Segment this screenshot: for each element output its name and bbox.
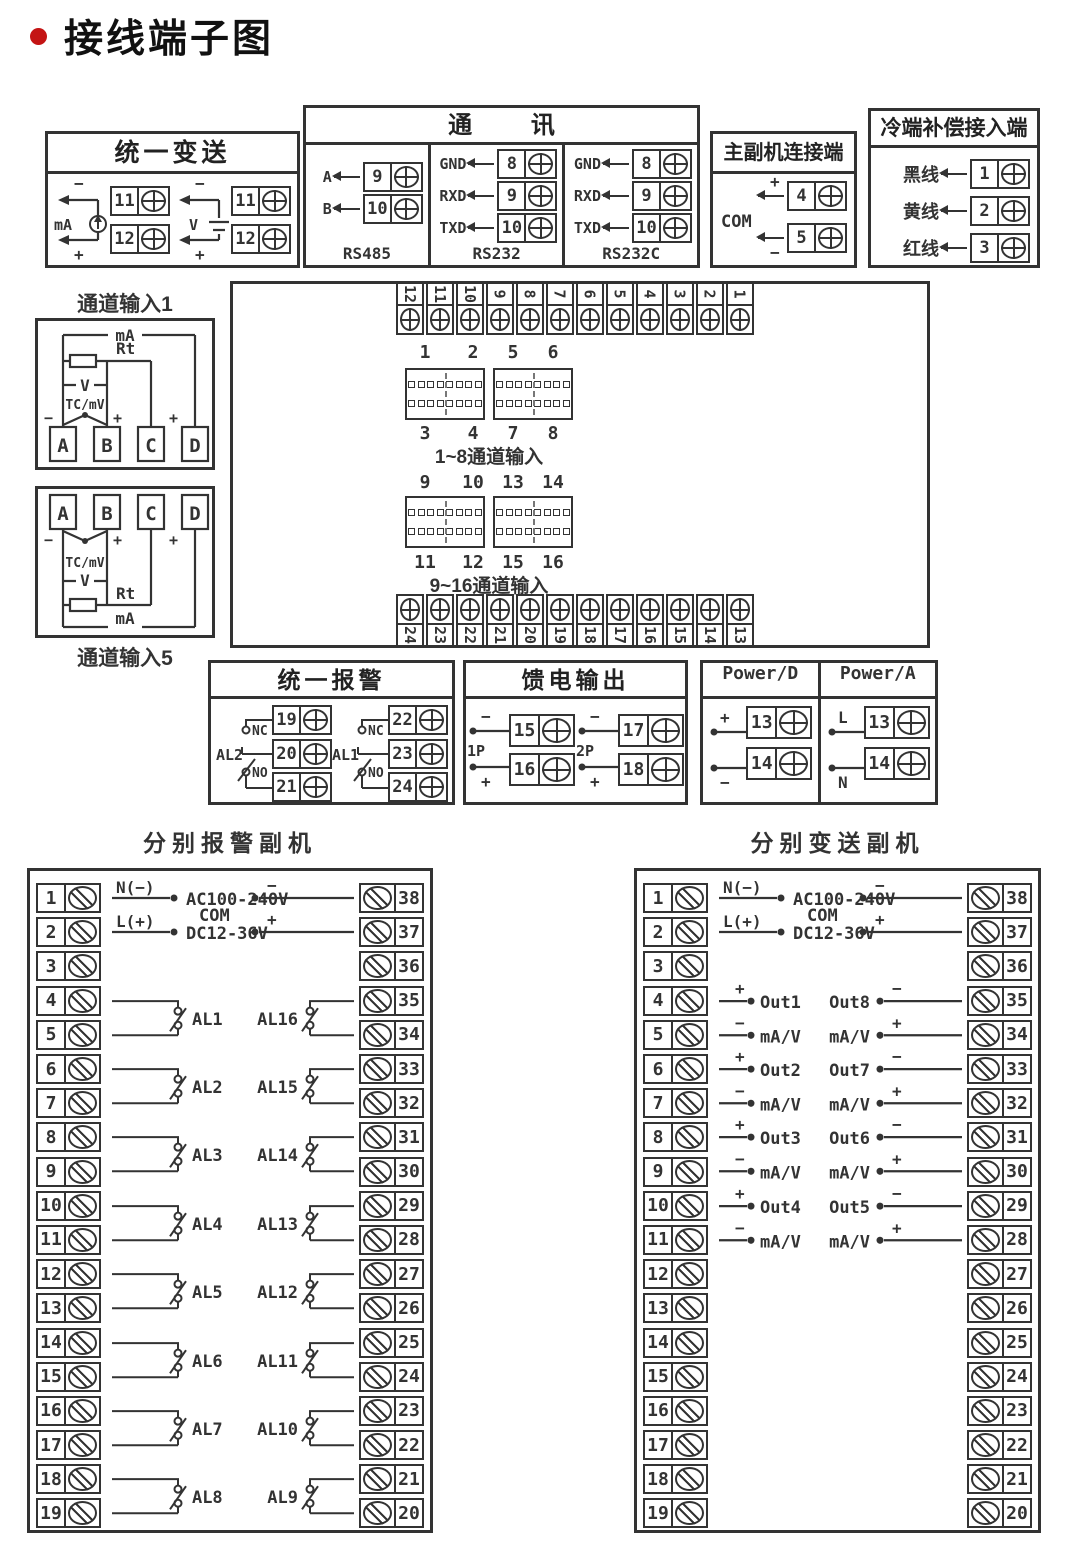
l-label: L(+) — [723, 912, 762, 931]
screw-icon — [668, 596, 692, 623]
screw-icon — [361, 1330, 394, 1356]
relay-switch-glyph: AL11 — [234, 1326, 354, 1394]
screw-icon — [969, 1227, 1002, 1253]
screw-icon — [673, 1466, 706, 1492]
arrow-left-icon — [758, 237, 784, 239]
ma-transmit-group: − mA + 11 12 — [54, 174, 170, 266]
terminal: 29 — [359, 1191, 424, 1221]
screw-icon — [66, 1398, 99, 1424]
plus-sign: + — [770, 172, 780, 191]
screw-icon — [698, 596, 722, 623]
screw-icon — [361, 1124, 394, 1150]
terminal-d: D — [189, 503, 200, 525]
screw-icon — [673, 1364, 706, 1390]
terminal: 26 — [359, 1293, 424, 1323]
comm-terminal: 8 — [497, 149, 557, 179]
screw-icon — [673, 1261, 706, 1287]
al1-terminals: 222324 — [388, 702, 448, 802]
right-output-stack: Out8 − mA/V + Out7 − mA/V + — [812, 984, 962, 1258]
alarm-terminal: 21 — [272, 772, 332, 802]
terminal: 17 — [36, 1430, 101, 1460]
screw-icon — [728, 596, 752, 623]
plus-sign: + — [875, 910, 885, 929]
strip-terminal: 14 — [696, 594, 724, 647]
screw-icon — [66, 1432, 99, 1458]
arrow-left-icon — [758, 195, 784, 197]
alarm-terminal: 19 — [272, 705, 332, 735]
v-label: V — [189, 216, 198, 234]
terminal: 10 — [36, 1191, 101, 1221]
screw-icon — [361, 1364, 394, 1390]
screw-icon — [548, 596, 572, 623]
screw-icon — [698, 306, 722, 333]
relay-switch-glyph: AL1 — [112, 984, 252, 1052]
minus-sign: − — [892, 1052, 902, 1066]
terminal-c: C — [145, 435, 156, 457]
connector-labels: 3478 — [405, 423, 573, 444]
terminal: 31 — [359, 1122, 424, 1152]
terminal: 23 — [967, 1396, 1032, 1426]
terminal: 13 — [643, 1293, 708, 1323]
relay-contact-glyph: NC AL1 NO — [332, 702, 388, 806]
screw-icon — [361, 1193, 394, 1219]
screw-icon — [816, 183, 845, 209]
unit-label: mA/V — [829, 1232, 870, 1252]
screw-icon — [518, 306, 542, 333]
screw-icon — [66, 1295, 99, 1321]
terminal: 25 — [967, 1328, 1032, 1358]
pin-number: 7 — [493, 423, 533, 444]
plus-sign: + — [892, 1218, 902, 1237]
screw-icon — [417, 741, 446, 767]
alarm-slave-title: 分别报警副机 — [27, 824, 433, 858]
feed-wire-glyph: − 2P + — [576, 705, 618, 795]
screw-icon — [673, 1432, 706, 1458]
connector-labels: 9101314 — [405, 472, 573, 493]
minus-sign: − — [74, 174, 84, 193]
screw-icon — [361, 1056, 394, 1082]
screw-icon — [361, 1261, 394, 1287]
channel-input-5-diagram: A B C D − + + TC/mV V Rt mA — [38, 489, 212, 635]
unified-transmit-title: 统一变送 — [48, 134, 297, 174]
pin-number: 2 — [453, 342, 493, 363]
screw-icon — [518, 596, 542, 623]
tc-mv-label: TC/mV — [65, 398, 104, 413]
v-terminals: 11 12 — [231, 186, 291, 254]
screw-icon — [608, 306, 632, 333]
arrow-left-icon — [603, 227, 629, 229]
terminal: 24 — [967, 1362, 1032, 1392]
cold-junction-panel: 冷端补偿接入端 黑线 1 黄线 2 红线 3 — [868, 108, 1040, 268]
screw-icon — [361, 988, 394, 1014]
terminal: 19 — [36, 1498, 101, 1528]
relay-switch-glyph: AL4 — [112, 1189, 252, 1257]
screw-icon — [139, 226, 168, 252]
terminal: 2 — [643, 917, 708, 947]
screw-icon — [417, 707, 446, 733]
strip-terminal: 15 — [666, 594, 694, 647]
screw-icon — [66, 1090, 99, 1116]
strip-terminal: 12 — [396, 282, 424, 335]
alarm-terminal: 24 — [388, 772, 448, 802]
terminal: 22 — [359, 1430, 424, 1460]
minus-sign: − — [770, 243, 780, 262]
plus-sign: + — [267, 910, 277, 929]
screw-icon — [661, 151, 690, 177]
terminal: 30 — [359, 1157, 424, 1187]
comm-row: B 10 — [306, 193, 428, 224]
l-label: L(+) — [116, 912, 155, 931]
screw-icon — [428, 596, 452, 623]
terminal: 37 — [359, 917, 424, 947]
strip-terminal: 17 — [606, 594, 634, 647]
screw-icon — [969, 1090, 1002, 1116]
screw-icon — [649, 755, 682, 784]
arrow-left-icon — [468, 163, 494, 165]
screw-icon — [895, 708, 928, 737]
1p-label: 1P — [467, 742, 485, 760]
transmit-slave-title: 分别变送副机 — [634, 824, 1041, 858]
strip-terminal: 24 — [396, 594, 424, 647]
relay-switch-glyph: AL5 — [112, 1257, 252, 1325]
terminal-row-4: + 4 — [756, 181, 847, 211]
arrow-left-icon — [603, 195, 629, 197]
comm-terminal: 10 — [632, 213, 692, 243]
screw-icon — [969, 1364, 1002, 1390]
unit-label: mA/V — [829, 1164, 870, 1184]
screw-icon — [66, 988, 99, 1014]
unified-alarm-title: 统一报警 — [211, 663, 452, 699]
relay-switch-glyph: AL7 — [112, 1394, 252, 1462]
communication-title: 通 讯 — [306, 108, 697, 145]
terminal: 12 — [643, 1259, 708, 1289]
terminal-d: D — [189, 435, 200, 457]
screw-icon — [66, 1056, 99, 1082]
feed-terminal: 17 — [618, 714, 684, 747]
terminal-11: 11 — [110, 186, 170, 216]
screw-icon — [673, 1124, 706, 1150]
nc-label: NC — [252, 724, 268, 739]
screw-icon — [673, 1193, 706, 1219]
com-label: COM — [721, 212, 752, 232]
alarm-slave-box: 12345678910111213141516171819 3837363534… — [27, 868, 433, 1533]
arrow-left-icon — [603, 163, 629, 165]
plus-sign: + — [720, 708, 730, 727]
terminal-b: B — [101, 435, 112, 457]
right-terminal-column: 38373635343332313029282726252423222120 — [967, 881, 1032, 1531]
relay-label: AL8 — [192, 1489, 223, 1509]
unit-label: mA/V — [760, 1095, 801, 1115]
plus-sign: + — [113, 409, 122, 427]
tc-mv-label: TC/mV — [65, 556, 104, 571]
terminal: 35 — [359, 986, 424, 1016]
terminal: 5 — [643, 1020, 708, 1050]
minus-sign: − — [735, 1081, 745, 1100]
screw-icon — [488, 596, 512, 623]
connector-labels: 11121516 — [405, 552, 573, 573]
screw-icon — [458, 596, 482, 623]
terminal-12: 12 — [231, 224, 291, 254]
channels-1-8-caption: 1~8通道输入 — [345, 442, 633, 469]
screw-icon — [66, 1193, 99, 1219]
power-d-terminals: 1314 — [746, 706, 812, 796]
screw-icon — [969, 919, 1002, 945]
output-label: Out8 — [829, 993, 870, 1013]
strip-terminal: 8 — [516, 282, 544, 335]
rs232-column: GND 8 RXD 9 TXD — [428, 145, 563, 265]
unit-label: mA/V — [829, 1095, 870, 1115]
comm-row: GND 8 — [565, 148, 697, 179]
minus-sign: − — [892, 984, 902, 998]
unit-label: mA/V — [760, 1164, 801, 1184]
strip-terminal: 23 — [426, 594, 454, 647]
screw-icon — [969, 1193, 1002, 1219]
v-label: V — [80, 376, 90, 395]
terminal-5: 5 — [787, 223, 847, 253]
pin-number: 16 — [533, 552, 573, 573]
terminal: 10 — [643, 1191, 708, 1221]
channel-input-1-box: mA Rt V TC/mV − + + A B C D — [35, 318, 215, 470]
left-relay-stack: AL1 AL2 AL3 — [112, 984, 252, 1531]
minus-sign: − — [735, 1150, 745, 1169]
bottom-terminal-strip: 24 23 22 21 20 19 18 17 16 15 14 13 — [396, 594, 754, 647]
strip-terminal: 9 — [486, 282, 514, 335]
terminal: 15 — [36, 1362, 101, 1392]
terminal: 1 — [643, 883, 708, 913]
relay-switch-glyph: AL2 — [112, 1052, 252, 1120]
power-a-column: Power/A L N 1314 — [818, 663, 936, 802]
relay-switch-glyph: AL13 — [234, 1189, 354, 1257]
minus-sign: − — [195, 174, 205, 193]
screw-icon — [428, 306, 452, 333]
strip-terminal: 6 — [576, 282, 604, 335]
terminal: 36 — [359, 951, 424, 981]
master-slave-body: COM + 4 − 5 — [713, 174, 854, 265]
screw-icon — [661, 183, 690, 209]
connector-block — [405, 368, 485, 420]
screw-icon — [673, 1500, 706, 1526]
master-slave-panel: 主副机连接端 COM + 4 − 5 — [710, 131, 857, 268]
terminal-a: A — [57, 435, 69, 457]
relay-label: AL14 — [257, 1147, 298, 1167]
screw-icon — [361, 1295, 394, 1321]
output-label: Out4 — [760, 1198, 801, 1218]
wiring-terminal-diagram-page: 接线端子图 统一变送 − mA + 11 12 — [0, 0, 1080, 1553]
minus-sign: − — [44, 531, 53, 549]
screw-icon — [673, 1056, 706, 1082]
feed-output-title: 馈电输出 — [466, 663, 685, 699]
comm-terminal: 8 — [632, 149, 692, 179]
screw-icon — [398, 596, 422, 623]
terminal: 4 — [643, 986, 708, 1016]
terminal: 35 — [967, 986, 1032, 1016]
terminal: 9 — [643, 1157, 708, 1187]
arrow-left-icon — [468, 195, 494, 197]
terminal: 31 — [967, 1122, 1032, 1152]
bullet-icon — [30, 28, 47, 45]
power-a-title: Power/A — [821, 663, 936, 699]
power-d-column: Power/D + − 1314 — [703, 663, 818, 802]
rs232-label: RS232 — [431, 244, 563, 263]
terminal: 14 — [36, 1328, 101, 1358]
unit-label: mA/V — [829, 1027, 870, 1047]
screw-icon — [673, 1227, 706, 1253]
terminal: 20 — [967, 1498, 1032, 1528]
cj-terminal: 3 — [970, 233, 1030, 263]
strip-terminal: 7 — [546, 282, 574, 335]
al2-label: AL2 — [216, 746, 243, 764]
relay-switch-glyph: AL8 — [112, 1462, 252, 1530]
relay-switch-glyph: AL3 — [112, 1120, 252, 1188]
screw-icon — [66, 1364, 99, 1390]
screw-icon — [301, 707, 330, 733]
feed-output-body: − 1P + 1516 − 2P + — [466, 699, 685, 795]
relay-label: AL6 — [192, 1352, 223, 1372]
terminal: 28 — [967, 1225, 1032, 1255]
power-wire-glyph: + − — [708, 706, 746, 796]
wire-row: 红线 3 — [871, 231, 1037, 264]
communication-panel: 通 讯 A 9 B 10 — [303, 105, 700, 268]
relay-label: AL12 — [257, 1283, 298, 1303]
connector-labels: 1256 — [405, 342, 573, 363]
wire-row: 黑线 1 — [871, 157, 1037, 190]
left-terminal-column: 12345678910111213141516171819 — [643, 881, 708, 1531]
pin-number: 3 — [405, 423, 445, 444]
output-label: Out1 — [760, 993, 801, 1013]
pin-number: 14 — [533, 472, 573, 493]
master-slave-title: 主副机连接端 — [713, 134, 854, 174]
rs232-rows: GND 8 RXD 9 TXD — [431, 148, 563, 243]
output-label: Out7 — [829, 1061, 870, 1081]
relay-label: AL16 — [257, 1010, 298, 1030]
terminal: 15 — [643, 1362, 708, 1392]
terminal: 21 — [967, 1464, 1032, 1494]
screw-icon — [578, 596, 602, 623]
minus-sign: − — [875, 881, 885, 895]
minus-sign: − — [892, 1189, 902, 1203]
screw-icon — [361, 1159, 394, 1185]
output-wire-glyph: Out7 − mA/V + — [812, 1052, 962, 1120]
terminal: 11 — [36, 1225, 101, 1255]
screw-icon — [668, 306, 692, 333]
relay-switch-glyph: AL12 — [234, 1257, 354, 1325]
terminal: 23 — [359, 1396, 424, 1426]
power-panel: Power/D + − 1314 Power/A L — [700, 660, 938, 805]
left-terminal-column: 12345678910111213141516171819 — [36, 881, 101, 1531]
right-terminal-column: 38373635343332313029282726252423222120 — [359, 881, 424, 1531]
strip-terminal: 4 — [636, 282, 664, 335]
screw-icon — [66, 885, 99, 911]
no-label: NO — [252, 766, 268, 781]
minus-sign: − — [44, 409, 53, 427]
terminal: 33 — [967, 1054, 1032, 1084]
minus-sign: − — [590, 707, 600, 726]
terminal: 25 — [359, 1328, 424, 1358]
screw-icon — [458, 306, 482, 333]
plus-sign: + — [892, 1150, 902, 1169]
terminal: 18 — [643, 1464, 708, 1494]
screw-icon — [526, 183, 555, 209]
terminal-c: C — [145, 503, 156, 525]
plus-sign: + — [481, 772, 491, 791]
arrow-left-icon — [941, 210, 967, 212]
alarm-terminal: 20 — [272, 739, 332, 769]
terminal: 5 — [36, 1020, 101, 1050]
screw-icon — [260, 226, 289, 252]
output-wire-glyph: Out8 − mA/V + — [812, 984, 962, 1052]
arrow-left-icon — [468, 227, 494, 229]
nc-label: NC — [368, 724, 384, 739]
screw-icon — [673, 1398, 706, 1424]
screw-icon — [969, 1056, 1002, 1082]
screw-icon — [260, 188, 289, 214]
comm-row: TXD 10 — [431, 212, 563, 243]
terminal: 30 — [967, 1157, 1032, 1187]
screw-icon — [969, 1330, 1002, 1356]
power-terminal: 13 — [864, 706, 930, 739]
minus-sign: − — [720, 773, 730, 792]
pin-number: 11 — [405, 552, 445, 573]
communication-columns: A 9 B 10 RS485 — [306, 145, 697, 265]
screw-icon — [398, 306, 422, 333]
arrow-left-icon — [334, 208, 360, 210]
pin-number: 5 — [493, 342, 533, 363]
screw-icon — [548, 306, 572, 333]
signal-label: TXD — [574, 219, 601, 237]
n-label: N(−) — [116, 881, 155, 897]
screw-icon — [661, 215, 690, 241]
terminal: 26 — [967, 1293, 1032, 1323]
terminal: 19 — [643, 1498, 708, 1528]
comm-row: A 9 — [306, 161, 428, 192]
strip-terminal: 20 — [516, 594, 544, 647]
screw-icon — [999, 161, 1028, 187]
1p-terminals: 1516 — [509, 714, 575, 786]
terminal-a: A — [57, 503, 69, 525]
line-label: L — [838, 708, 848, 727]
terminal: 4 — [36, 986, 101, 1016]
channel-input-1-title: 通道输入1 — [35, 288, 215, 318]
terminal: 2 — [36, 917, 101, 947]
ma-label: mA — [54, 216, 72, 234]
screw-icon — [392, 196, 421, 222]
output-wire-glyph: Out6 − mA/V + — [812, 1120, 962, 1188]
screw-icon — [673, 1159, 706, 1185]
signal-label: B — [323, 200, 332, 218]
plus-sign: + — [169, 531, 178, 549]
cj-terminal: 1 — [970, 159, 1030, 189]
top-terminal-strip: 12 11 10 9 8 7 6 5 4 3 2 1 — [396, 282, 754, 335]
connector-row-2 — [405, 496, 573, 548]
terminal: 9 — [36, 1157, 101, 1187]
channel-input-5-box: A B C D − + + TC/mV V Rt mA — [35, 486, 215, 638]
output-label: Out3 — [760, 1129, 801, 1149]
pin-number: 9 — [405, 472, 445, 493]
ma-label: mA — [115, 609, 135, 628]
strip-terminal: 5 — [606, 282, 634, 335]
screw-icon — [638, 596, 662, 623]
plus-sign: + — [195, 245, 205, 264]
arrow-left-icon — [334, 176, 360, 178]
strip-terminal: 13 — [726, 594, 754, 647]
screw-icon — [66, 1261, 99, 1287]
screw-icon — [66, 1330, 99, 1356]
unit-label: mA/V — [760, 1232, 801, 1252]
power-terminal: 14 — [864, 747, 930, 780]
screw-icon — [578, 306, 602, 333]
screw-icon — [969, 1261, 1002, 1287]
feed-terminal: 16 — [509, 753, 575, 786]
